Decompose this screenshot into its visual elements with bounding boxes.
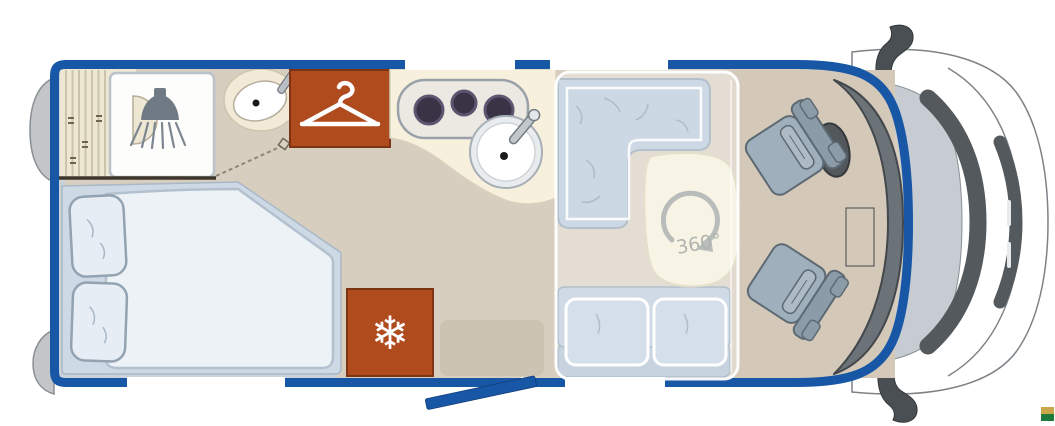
logo-badge-bottom: [1041, 414, 1054, 421]
stove-burner-middle: [452, 91, 476, 115]
motorhome-floorplan: ❄ 360°: [0, 0, 1055, 426]
wardrobe-cabinet: [290, 70, 390, 147]
overlay-panel: [556, 72, 738, 379]
snowflake-icon: ❄: [371, 306, 410, 360]
stove-burner-left: [415, 96, 443, 124]
wardrobe-area: [290, 70, 390, 147]
logo-badge: [1041, 407, 1054, 421]
window-top-left: [405, 59, 515, 70]
grille-slit-bottom: [1007, 242, 1011, 268]
logo-badge-top: [1041, 407, 1054, 414]
entry-step: [440, 320, 544, 376]
window-bottom-left: [127, 377, 285, 388]
kitchen-sink-drain: [500, 152, 508, 160]
dropdown-bed-overlay: [556, 72, 738, 379]
pillow-shape: [71, 282, 128, 362]
bed-pillow-top: [69, 195, 127, 278]
fridge-area: ❄: [347, 289, 433, 376]
pillow-shape: [69, 195, 127, 278]
grille-slit-top: [1007, 200, 1011, 226]
washbasin-drain: [253, 100, 260, 107]
dashboard-notch: [846, 208, 874, 266]
bed-pillow-bottom: [71, 282, 128, 362]
window-top-right: [550, 59, 668, 70]
